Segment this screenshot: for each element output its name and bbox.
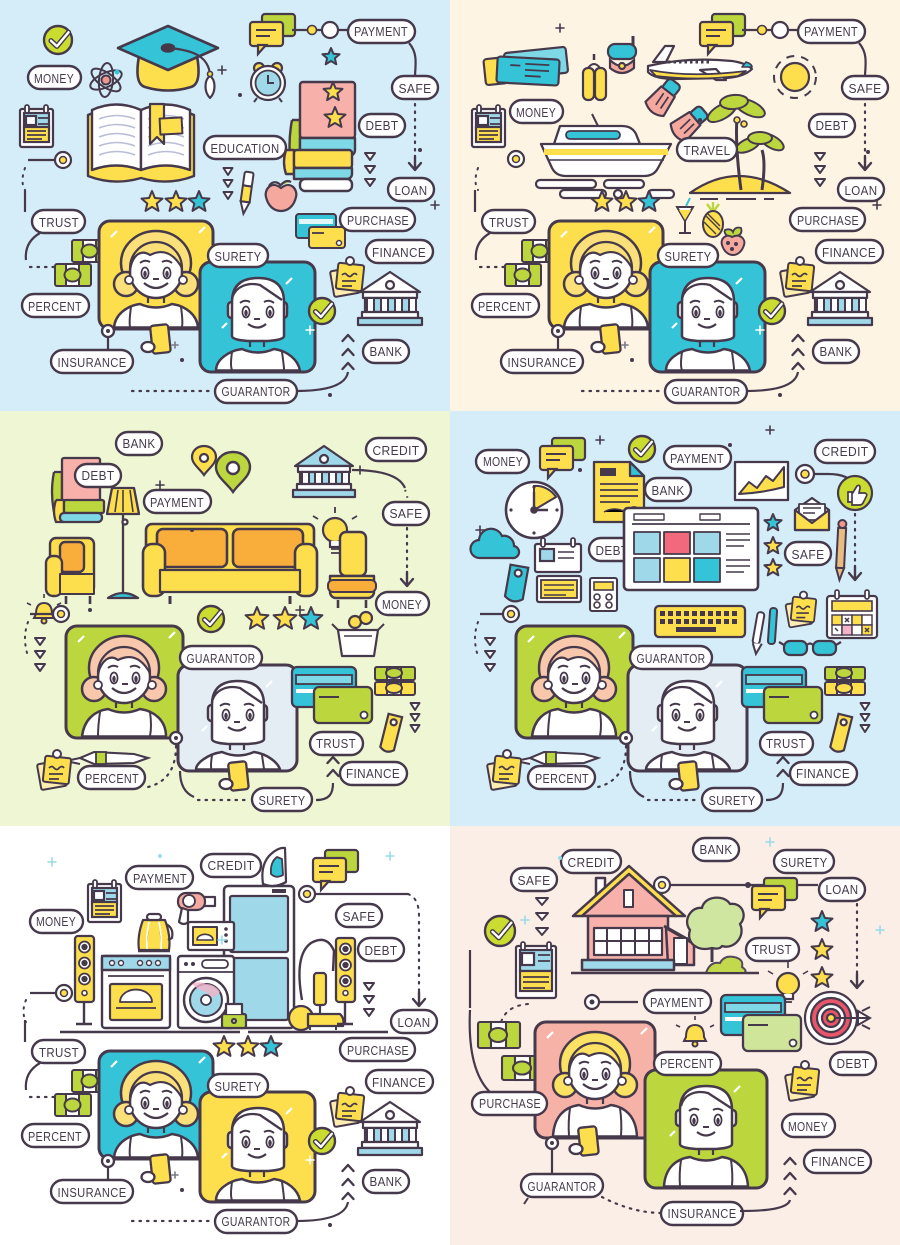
svg-text:PERCENT: PERCENT <box>660 1056 714 1071</box>
svg-text:PURCHASE: PURCHASE <box>347 213 409 228</box>
svg-text:SAFE: SAFE <box>390 506 423 521</box>
svg-text:SAFE: SAFE <box>518 873 551 888</box>
svg-text:SURETY: SURETY <box>781 855 828 870</box>
svg-text:MONEY: MONEY <box>382 597 422 612</box>
svg-text:TRUST: TRUST <box>39 215 79 230</box>
svg-text:LOAN: LOAN <box>845 183 878 198</box>
svg-text:SURETY: SURETY <box>215 1079 262 1094</box>
svg-text:TRUST: TRUST <box>752 942 792 957</box>
svg-text:DEBT: DEBT <box>82 468 115 483</box>
svg-text:SAFE: SAFE <box>792 547 825 562</box>
svg-text:TRUST: TRUST <box>766 736 806 751</box>
svg-text:MONEY: MONEY <box>34 71 74 86</box>
svg-text:SURETY: SURETY <box>215 249 262 264</box>
svg-text:FINANCE: FINANCE <box>822 245 876 260</box>
svg-text:TRUST: TRUST <box>316 736 356 751</box>
svg-text:MONEY: MONEY <box>36 914 76 929</box>
svg-text:GUARANTOR: GUARANTOR <box>222 384 291 399</box>
svg-text:LOAN: LOAN <box>826 882 859 897</box>
svg-text:LOAN: LOAN <box>398 1015 431 1030</box>
svg-text:PAYMENT: PAYMENT <box>650 995 704 1010</box>
svg-text:FINANCE: FINANCE <box>372 245 426 260</box>
svg-text:GUARANTOR: GUARANTOR <box>222 1214 291 1229</box>
svg-text:PURCHASE: PURCHASE <box>797 213 859 228</box>
svg-text:PAYMENT: PAYMENT <box>804 24 858 39</box>
svg-text:BANK: BANK <box>370 1174 403 1189</box>
svg-text:DEBT: DEBT <box>816 118 849 133</box>
svg-text:SURETY: SURETY <box>709 793 756 808</box>
svg-text:CREDIT: CREDIT <box>822 444 869 459</box>
svg-text:GUARANTOR: GUARANTOR <box>187 651 256 666</box>
svg-text:BANK: BANK <box>820 344 853 359</box>
svg-text:FINANCE: FINANCE <box>346 766 400 781</box>
svg-text:BANK: BANK <box>700 842 733 857</box>
svg-text:PAYMENT: PAYMENT <box>133 871 187 886</box>
svg-text:GUARANTOR: GUARANTOR <box>672 384 741 399</box>
svg-text:INSURANCE: INSURANCE <box>58 355 127 370</box>
svg-text:PAYMENT: PAYMENT <box>150 495 204 510</box>
svg-text:PERCENT: PERCENT <box>28 299 82 314</box>
svg-text:CREDIT: CREDIT <box>208 858 255 873</box>
svg-text:BANK: BANK <box>652 483 685 498</box>
svg-text:SAFE: SAFE <box>343 909 376 924</box>
svg-text:CREDIT: CREDIT <box>373 443 420 458</box>
svg-text:PURCHASE: PURCHASE <box>479 1096 541 1111</box>
svg-text:MONEY: MONEY <box>483 454 523 469</box>
svg-text:BANK: BANK <box>123 436 156 451</box>
svg-text:SAFE: SAFE <box>399 81 432 96</box>
svg-text:PERCENT: PERCENT <box>535 771 589 786</box>
svg-text:INSURANCE: INSURANCE <box>668 1206 737 1221</box>
svg-text:PERCENT: PERCENT <box>28 1129 82 1144</box>
svg-text:LOAN: LOAN <box>395 183 428 198</box>
svg-text:GUARANTOR: GUARANTOR <box>637 651 706 666</box>
svg-text:MONEY: MONEY <box>788 1119 828 1134</box>
svg-text:INSURANCE: INSURANCE <box>58 1185 127 1200</box>
svg-text:SURETY: SURETY <box>259 793 306 808</box>
svg-text:DEBT: DEBT <box>366 118 399 133</box>
svg-text:INSURANCE: INSURANCE <box>508 355 577 370</box>
svg-text:SAFE: SAFE <box>849 81 882 96</box>
svg-text:FINANCE: FINANCE <box>811 1154 865 1169</box>
svg-text:SURETY: SURETY <box>665 249 712 264</box>
svg-text:DEBT: DEBT <box>837 1056 870 1071</box>
svg-text:PERCENT: PERCENT <box>478 299 532 314</box>
svg-text:GUARANTOR: GUARANTOR <box>528 1179 597 1194</box>
svg-text:CREDIT: CREDIT <box>568 855 615 870</box>
svg-text:BANK: BANK <box>370 344 403 359</box>
svg-text:TRUST: TRUST <box>489 215 529 230</box>
svg-text:PAYMENT: PAYMENT <box>354 24 408 39</box>
svg-text:PURCHASE: PURCHASE <box>347 1043 409 1058</box>
svg-text:EDUCATION: EDUCATION <box>211 141 280 156</box>
svg-text:DEBT: DEBT <box>365 943 398 958</box>
svg-text:PAYMENT: PAYMENT <box>670 451 724 466</box>
svg-text:PERCENT: PERCENT <box>85 771 139 786</box>
svg-text:TRAVEL: TRAVEL <box>684 143 731 158</box>
svg-text:MONEY: MONEY <box>516 105 556 120</box>
svg-text:TRUST: TRUST <box>39 1045 79 1060</box>
svg-text:FINANCE: FINANCE <box>796 766 850 781</box>
svg-text:FINANCE: FINANCE <box>372 1075 426 1090</box>
